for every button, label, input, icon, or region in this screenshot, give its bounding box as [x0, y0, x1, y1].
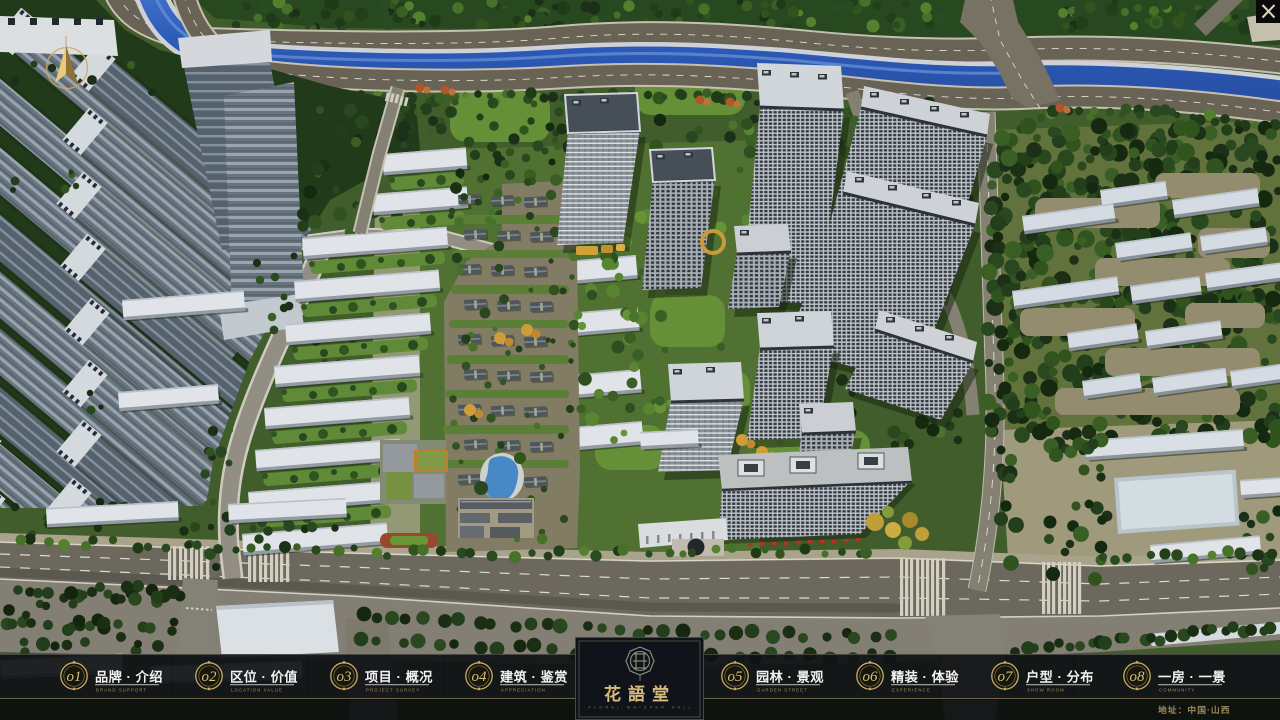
svg-text:品牌 · 介绍: 品牌 · 介绍 [95, 669, 163, 685]
svg-text:EXPERIENCE: EXPERIENCE [892, 688, 931, 693]
svg-text:PROJECT SURVEY: PROJECT SURVEY [366, 688, 420, 693]
svg-text:o8: o8 [1130, 669, 1146, 685]
svg-text:地址：中国·山西: 地址：中国·山西 [1158, 704, 1231, 715]
svg-text:精装 · 体验: 精装 · 体验 [891, 669, 959, 685]
svg-text:LOCATION VALUE: LOCATION VALUE [231, 688, 283, 693]
svg-text:o3: o3 [337, 669, 352, 685]
svg-text:项目 · 概况: 项目 · 概况 [365, 669, 433, 685]
svg-text:o6: o6 [863, 669, 879, 685]
svg-text:o5: o5 [728, 669, 744, 685]
svg-text:APPRECIATION: APPRECIATION [501, 688, 546, 693]
svg-text:BRAND SUPPORT: BRAND SUPPORT [96, 688, 147, 693]
svg-text:o1: o1 [67, 669, 82, 685]
svg-text:区位 · 价值: 区位 · 价值 [230, 669, 298, 685]
svg-text:花語堂: 花語堂 [604, 684, 676, 704]
svg-text:o2: o2 [202, 669, 218, 685]
svg-text:SHOW ROOM: SHOW ROOM [1027, 688, 1065, 693]
svg-text:建筑 · 鉴赏: 建筑 · 鉴赏 [500, 669, 568, 685]
svg-text:户型 · 分布: 户型 · 分布 [1026, 669, 1094, 685]
svg-text:o4: o4 [472, 669, 488, 685]
svg-text:一房 · 一景: 一房 · 一景 [1158, 669, 1226, 685]
svg-text:COMMUNITY: COMMUNITY [1159, 688, 1195, 693]
svg-text:园林 · 景观: 园林 · 景观 [756, 669, 824, 685]
svg-text:GARDEN STREET: GARDEN STREET [757, 688, 808, 693]
svg-text:o7: o7 [998, 669, 1015, 685]
svg-text:· F L O R A L · W H I S P E R: · F L O R A L · W H I S P E R · H A L L … [584, 706, 696, 710]
